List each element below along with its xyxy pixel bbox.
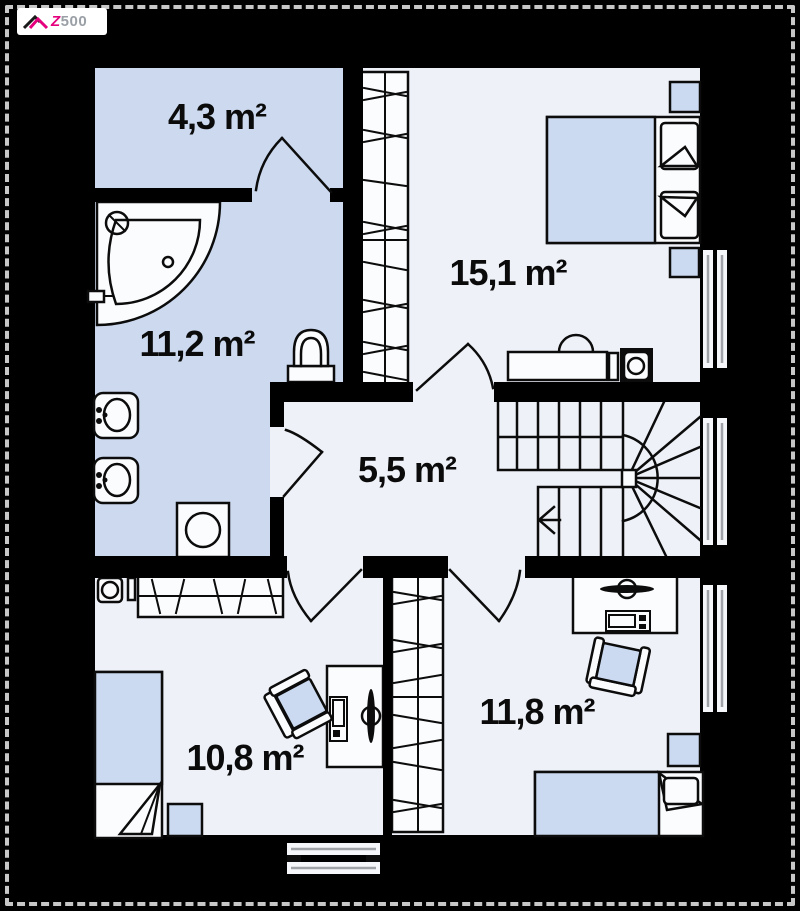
room-label-bedroom-108: 10,8 m² [186,737,303,779]
bath-faucet [88,291,104,302]
washing-machine [177,503,229,557]
wardrobe-bottom-right [392,576,443,832]
stair-spine [622,470,636,487]
logo-z: Z [51,13,61,30]
patch-door-bedroom-151 [413,382,494,402]
z500-logo: Z500 [17,8,107,35]
bed-blanket [535,772,659,836]
room-label-hall: 5,5 m² [358,449,456,491]
wardrobe-bottom-left [138,576,283,617]
room-label-top-left: 4,3 m² [168,96,266,138]
room-label-bedroom-118: 11,8 m² [479,691,594,733]
nightstand [670,82,700,112]
single-bed-118 [535,772,703,836]
window-bedroom-118 [703,585,727,712]
window-stairs [703,418,727,545]
pillow [664,778,698,804]
window-bottom [287,843,380,874]
chimney-flue [620,348,653,384]
logo-number: 500 [61,13,88,30]
sink-2 [94,458,138,503]
sink-1 [94,393,138,438]
nightstand [668,734,700,766]
floor-plan-page: Z500 [0,0,800,911]
room-label-bathroom: 11,2 m² [139,323,254,365]
bed-blanket [95,672,162,784]
window-bedroom-151 [703,250,727,368]
logo-text: Z500 [51,14,87,29]
nightstand [670,248,699,277]
patch-door-118 [448,556,525,578]
roof-icon [23,13,49,31]
patch-door-108 [287,556,363,578]
single-bed-108 [95,672,162,838]
patch-door-top-left [252,186,330,202]
patch-door-bathroom [270,427,284,497]
desk-118 [573,575,677,633]
room-label-bedroom-151: 15,1 m² [449,252,566,294]
desk-108 [327,666,383,767]
flue-bottom-left [98,578,135,602]
bed-blanket [547,117,655,243]
wardrobe-bedroom-151 [361,72,408,385]
nightstand [168,804,202,836]
double-bed [547,117,700,243]
